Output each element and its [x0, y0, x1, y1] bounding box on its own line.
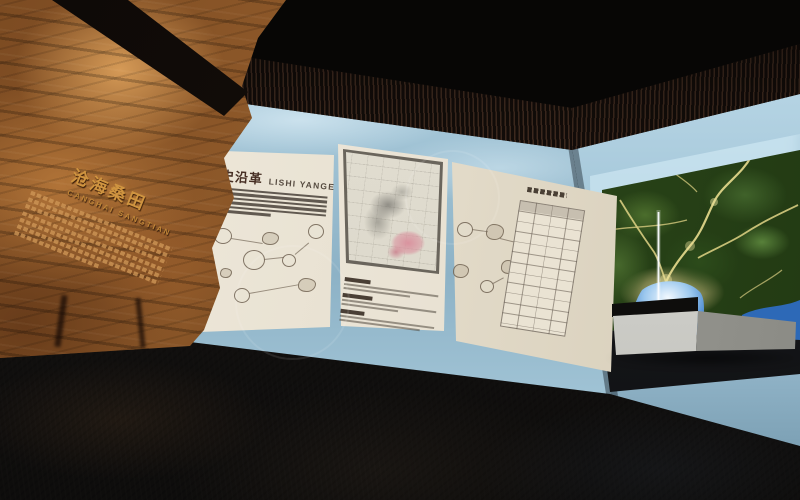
- callout-circle: [480, 280, 494, 293]
- watermark-circle: [235, 245, 350, 360]
- exhibition-hall-scene: 历史沿革LISHI YANGE: [0, 0, 800, 500]
- watermark-circle: [405, 150, 500, 245]
- panel-history-title-pinyin: LISHI YANGE: [268, 176, 335, 192]
- callout-circle: [308, 224, 324, 239]
